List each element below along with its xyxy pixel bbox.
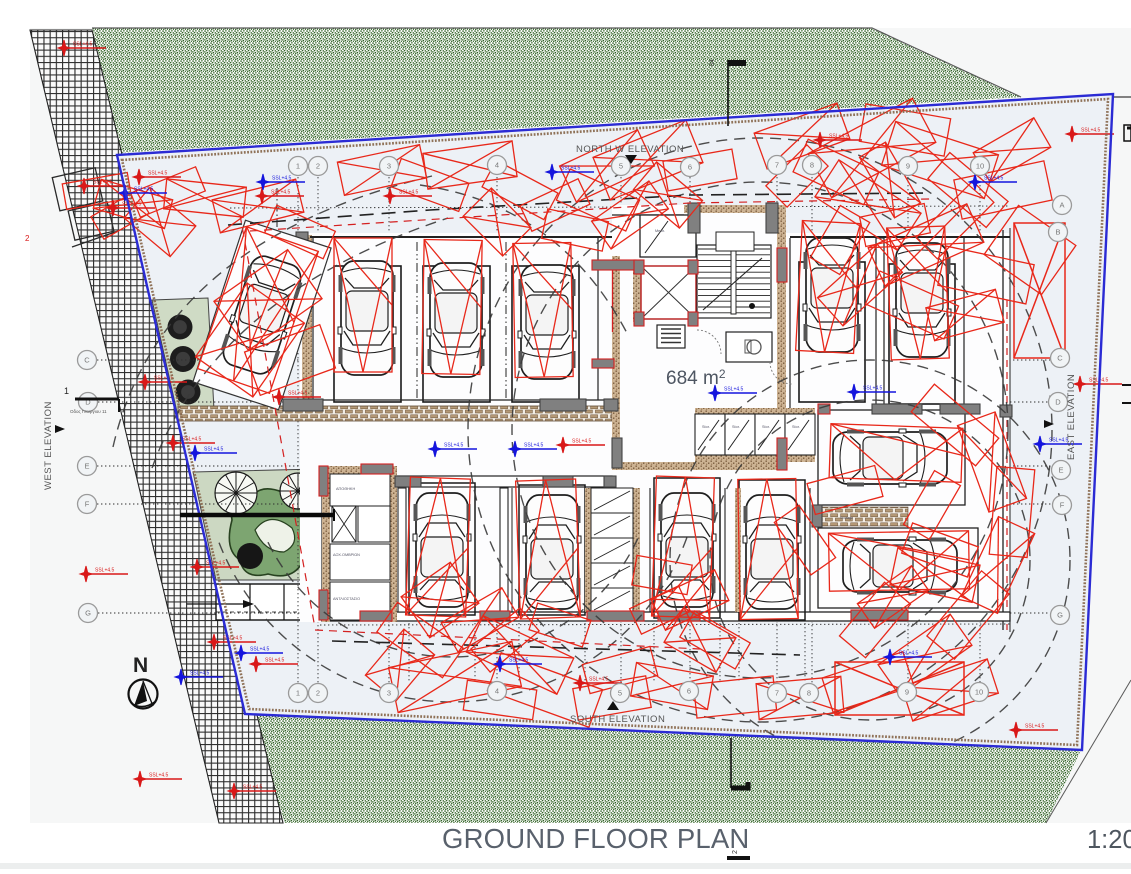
- svg-text:ΔΟΧ.ΟΜΒΡΙΩΝ: ΔΟΧ.ΟΜΒΡΙΩΝ: [333, 553, 360, 557]
- svg-text:9: 9: [905, 688, 909, 697]
- svg-text:N: N: [133, 654, 148, 677]
- svg-text:SSL+4.5: SSL+4.5: [899, 651, 919, 657]
- svg-text:SSL+4.5: SSL+4.5: [149, 773, 169, 779]
- svg-text:1: 1: [296, 162, 300, 171]
- svg-text:ΑΝΤΛΙΟΣΤΑΣΙΟ: ΑΝΤΛΙΟΣΤΑΣΙΟ: [333, 597, 360, 601]
- svg-text:SSL+4.5: SSL+4.5: [243, 785, 263, 791]
- svg-text:SSL+4.5: SSL+4.5: [73, 42, 93, 48]
- svg-text:10: 10: [976, 162, 984, 171]
- svg-text:8: 8: [810, 161, 814, 170]
- svg-text:SSL+4.5: SSL+4.5: [134, 187, 154, 193]
- svg-text:SSL+4.5: SSL+4.5: [1025, 724, 1045, 730]
- svg-text:Mech.: Mech.: [655, 229, 665, 233]
- svg-text:SSL+4.5: SSL+4.5: [95, 568, 115, 574]
- svg-text:Storage: Storage: [840, 516, 853, 520]
- svg-text:4: 4: [495, 687, 499, 696]
- svg-text:5: 5: [618, 689, 622, 698]
- svg-text:SSL+4.5: SSL+4.5: [204, 447, 224, 453]
- svg-text:G: G: [85, 609, 91, 618]
- svg-text:684 m2: 684 m2: [666, 367, 726, 389]
- svg-text:B: B: [1055, 228, 1060, 237]
- svg-text:ΑΠΟΘΗΚΗ: ΑΠΟΘΗΚΗ: [336, 487, 355, 491]
- svg-text:3: 3: [387, 162, 391, 171]
- svg-text:F: F: [85, 500, 90, 509]
- svg-text:SSL+4.5: SSL+4.5: [589, 677, 609, 683]
- svg-text:EAST ELEVATION: EAST ELEVATION: [1066, 374, 1077, 460]
- svg-text:SSL+4.5: SSL+4.5: [524, 443, 544, 449]
- svg-text:E: E: [1058, 466, 1063, 475]
- svg-text:5: 5: [619, 162, 623, 171]
- svg-text:NORTH W ELEVATION: NORTH W ELEVATION: [576, 144, 684, 155]
- svg-text:10: 10: [975, 688, 983, 697]
- svg-text:SSL+4.5: SSL+4.5: [250, 647, 270, 653]
- svg-text:SSL+4.5: SSL+4.5: [288, 391, 308, 397]
- svg-text:SSL+4.5: SSL+4.5: [829, 134, 849, 140]
- svg-text:Stor.: Stor.: [792, 425, 800, 429]
- svg-text:SSL+4.5: SSL+4.5: [399, 190, 419, 196]
- svg-text:SSL+4.5: SSL+4.5: [561, 166, 581, 172]
- svg-text:GROUND FLOOR PLAN: GROUND FLOOR PLAN: [442, 823, 749, 854]
- svg-text:SSL+4.5: SSL+4.5: [190, 671, 210, 677]
- svg-text:SSL+4.5: SSL+4.5: [93, 180, 113, 186]
- svg-text:04: 04: [710, 59, 716, 66]
- svg-text:SSL+4.5: SSL+4.5: [154, 376, 174, 382]
- svg-text:4: 4: [495, 161, 499, 170]
- svg-text:Οδος Γεωργιου 11: Οδος Γεωργιου 11: [70, 409, 107, 414]
- svg-text:A: A: [1059, 201, 1064, 210]
- svg-text:D: D: [1055, 398, 1061, 407]
- svg-text:1:20: 1:20: [1087, 826, 1131, 854]
- svg-text:6: 6: [688, 163, 692, 172]
- svg-text:7: 7: [775, 689, 779, 698]
- svg-text:6: 6: [687, 687, 691, 696]
- svg-text:G: G: [1057, 611, 1063, 620]
- svg-text:SOUTH ELEVATION: SOUTH ELEVATION: [570, 714, 665, 725]
- svg-text:C: C: [1057, 354, 1063, 363]
- svg-text:SSL+4.5: SSL+4.5: [272, 176, 292, 182]
- svg-text:1: 1: [64, 386, 69, 396]
- svg-text:9: 9: [906, 162, 910, 171]
- svg-text:8: 8: [807, 689, 811, 698]
- svg-text:SSL+4.5: SSL+4.5: [1081, 128, 1101, 134]
- svg-text:SSL+4.5: SSL+4.5: [724, 387, 744, 393]
- svg-text:2: 2: [25, 234, 30, 243]
- svg-text:WEST ELEVATION: WEST ELEVATION: [43, 401, 54, 490]
- svg-text:C: C: [84, 356, 90, 365]
- svg-text:SSL+4.5: SSL+4.5: [572, 439, 592, 445]
- svg-text:1: 1: [296, 689, 300, 698]
- svg-text:SSL+4.5: SSL+4.5: [984, 176, 1004, 182]
- svg-text:SSL+4.5: SSL+4.5: [444, 443, 464, 449]
- svg-text:3: 3: [387, 689, 391, 698]
- svg-text:F: F: [1060, 501, 1065, 510]
- svg-text:Stor.: Stor.: [762, 425, 770, 429]
- svg-text:SSL+4.5: SSL+4.5: [271, 190, 291, 196]
- svg-text:SSL+4.5: SSL+4.5: [863, 386, 883, 392]
- svg-text:SSL+4.5: SSL+4.5: [265, 658, 285, 664]
- svg-text:SSL+4.5: SSL+4.5: [509, 658, 529, 664]
- svg-text:SSL+4.5: SSL+4.5: [148, 171, 168, 177]
- svg-text:Stor.: Stor.: [702, 425, 710, 429]
- svg-text:7: 7: [775, 161, 779, 170]
- svg-text:2: 2: [316, 689, 320, 698]
- svg-text:Stor.: Stor.: [732, 425, 740, 429]
- svg-text:2: 2: [316, 162, 320, 171]
- svg-text:E: E: [84, 462, 89, 471]
